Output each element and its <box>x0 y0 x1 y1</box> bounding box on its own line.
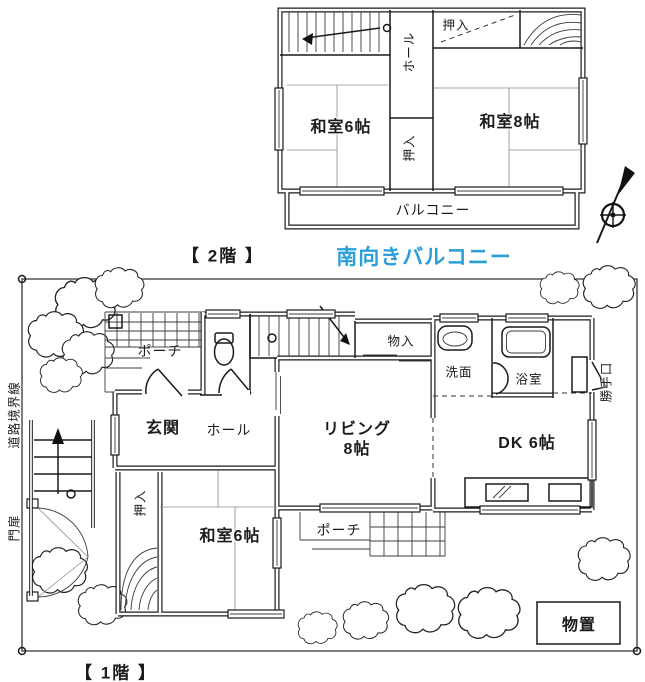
room-label-hall-1f: ホール <box>207 420 252 440</box>
approach-steps <box>34 428 92 498</box>
room-label-hall-2f: ホール <box>399 32 418 73</box>
toilet-room <box>200 314 251 395</box>
compass-icon <box>597 166 635 243</box>
room-label-yokushitsu-1f: 浴室 <box>515 369 542 388</box>
floorplan-drawing <box>0 0 645 682</box>
floorplan-page: 押入 ホール 和室6帖 和室8帖 押入 バルコニー 【 2階 】 南向きバルコニ… <box>0 0 645 682</box>
room-label-genkan-1f: 玄関 <box>146 414 180 438</box>
washroom <box>433 318 492 398</box>
room-label-dk-1f: DK 6帖 <box>498 429 555 453</box>
room-label-washitsu6-2f: 和室6帖 <box>311 113 372 137</box>
room-label-senmen-1f: 洗面 <box>445 362 472 381</box>
kitchen-sink-icon <box>486 484 528 501</box>
stove-icon <box>549 484 581 501</box>
room-label-porch-bottom-1f: ポーチ <box>317 520 362 540</box>
label-monooki: 物置 <box>562 611 596 635</box>
floor1-interior <box>121 306 592 612</box>
floor2-caption: 【 2階 】 <box>182 242 264 267</box>
floor1-caption: 【 1階 】 <box>75 659 157 682</box>
room-label-balcony-2f: バルコニー <box>396 200 471 220</box>
tokonoma-woodgrain-2f <box>524 14 581 45</box>
room-label-living-size-1f: 8帖 <box>344 435 371 459</box>
room-label-washitsu6-1f: 和室6帖 <box>200 522 261 546</box>
stairs-2f <box>289 12 391 52</box>
label-road-boundary: 道路境界線 <box>4 381 23 449</box>
kitchen-counter <box>465 478 592 507</box>
room-label-porch-top-1f: ポーチ <box>138 341 183 361</box>
room-label-monoire-1f: 物入 <box>387 331 414 350</box>
room-label-oshiire-1f: 押入 <box>130 489 149 516</box>
backdoor-area <box>553 318 592 398</box>
floor2-interior <box>280 10 583 191</box>
room-label-oshiire-top-2f: 押入 <box>442 15 469 34</box>
label-katteguchi: 勝手口 <box>596 362 615 403</box>
label-gate: 門扉 <box>4 514 23 541</box>
room-label-oshiire-mid-2f: 押入 <box>399 134 418 161</box>
room-label-washitsu8-2f: 和室8帖 <box>480 108 541 132</box>
south-balcony-highlight: 南向きバルコニー <box>336 241 512 271</box>
